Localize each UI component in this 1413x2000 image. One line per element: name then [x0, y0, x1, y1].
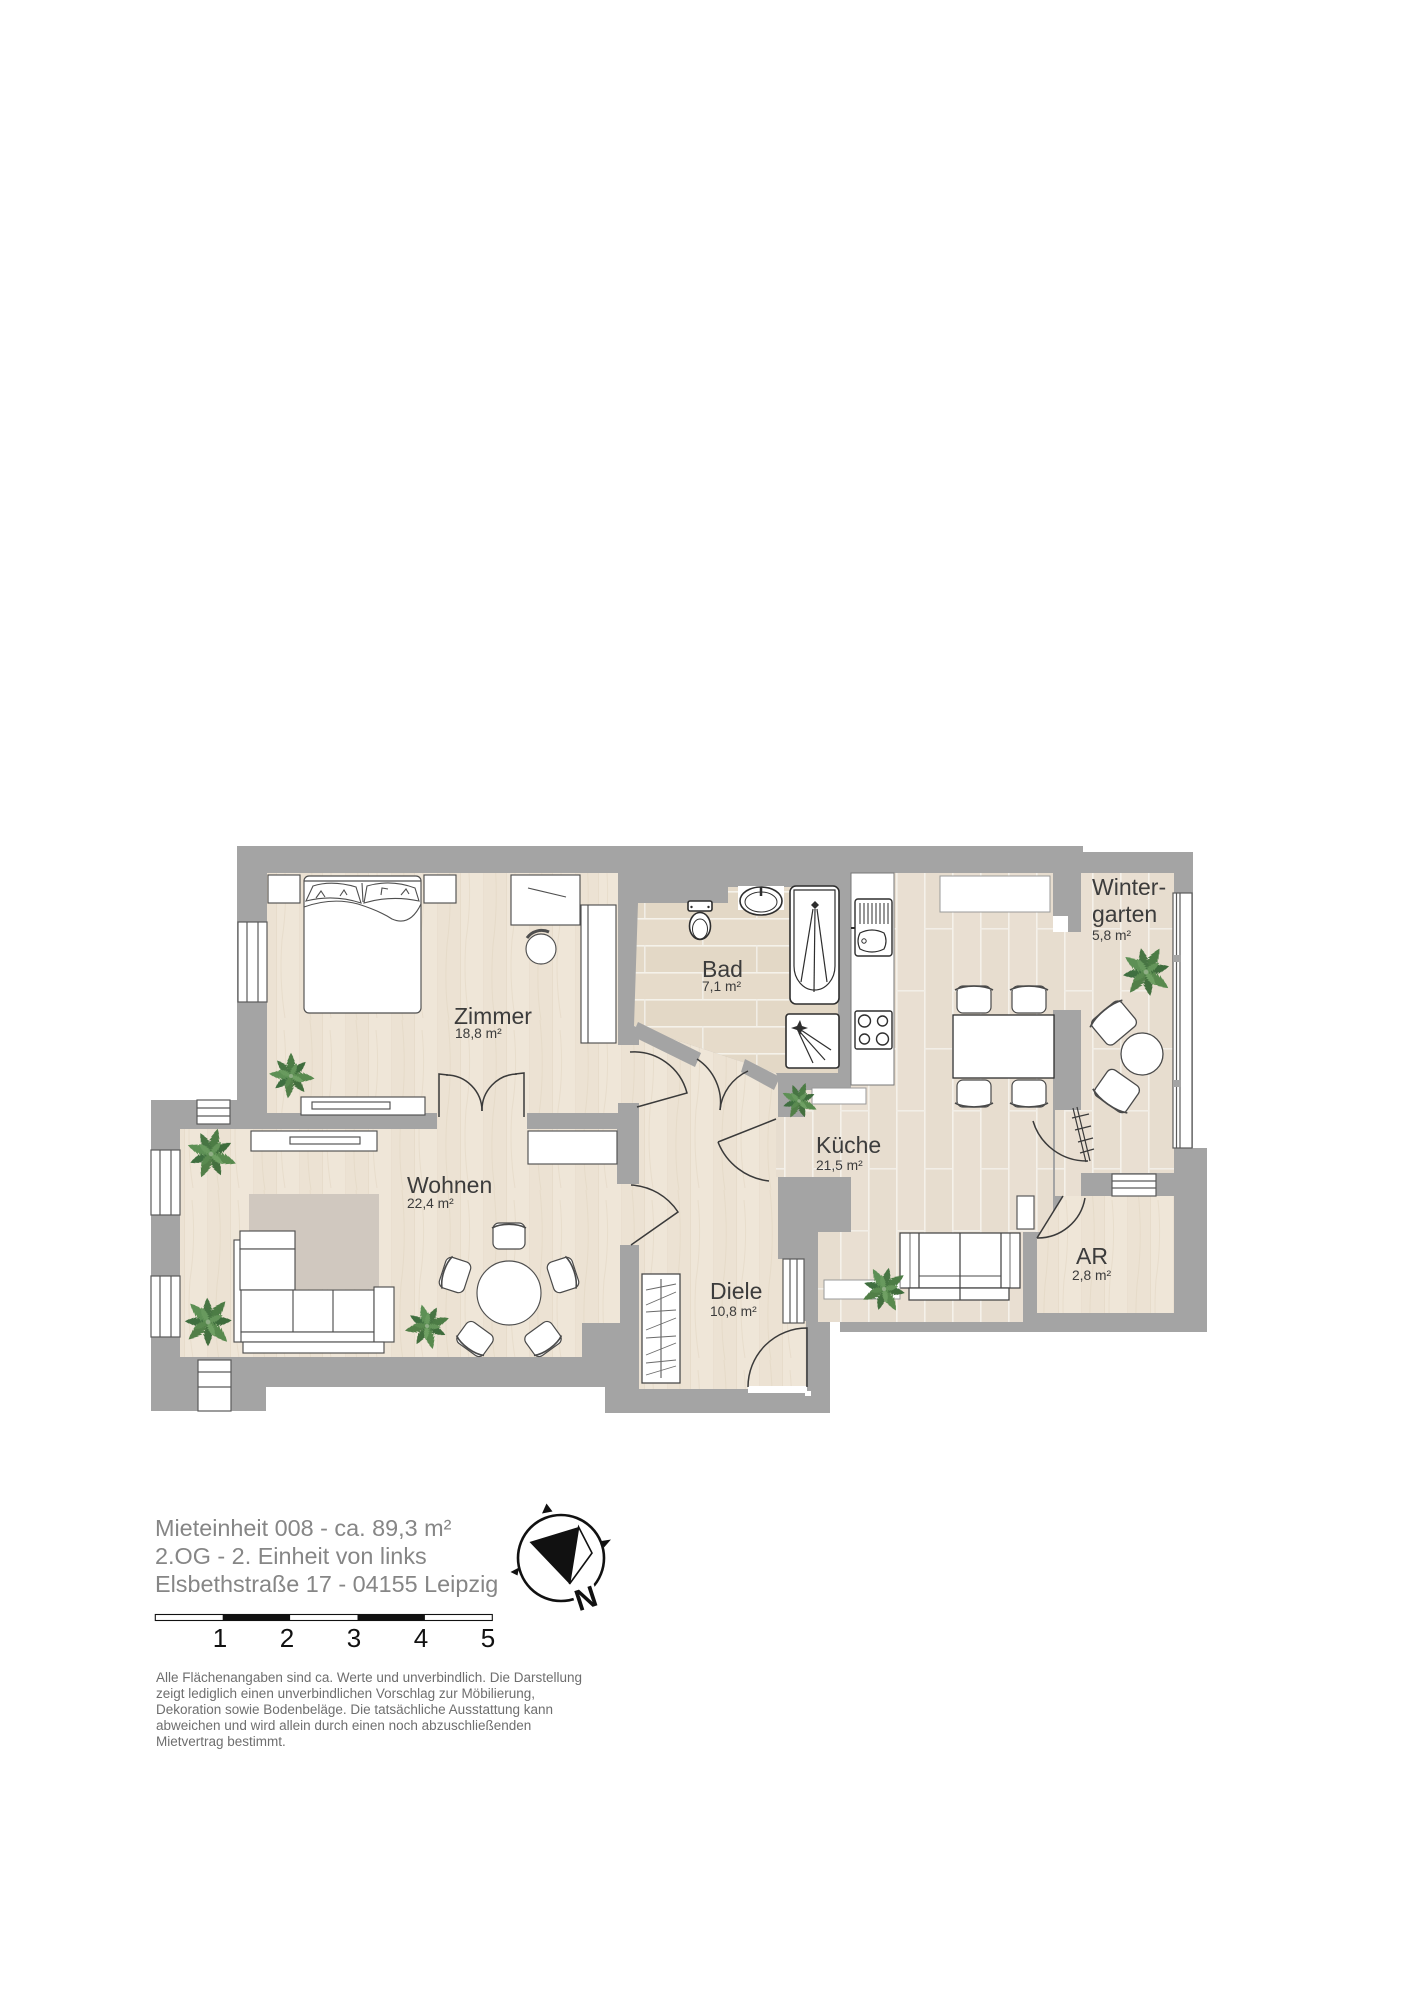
- svg-text:21,5 m²: 21,5 m²: [816, 1158, 863, 1173]
- svg-text:Winter-: Winter-: [1092, 874, 1166, 900]
- svg-text:5,8 m²: 5,8 m²: [1092, 928, 1132, 943]
- svg-text:2.OG - 2. Einheit von links: 2.OG - 2. Einheit von links: [155, 1543, 427, 1569]
- svg-text:2,8 m²: 2,8 m²: [1072, 1268, 1112, 1283]
- svg-text:3: 3: [347, 1623, 361, 1653]
- svg-text:AR: AR: [1076, 1243, 1108, 1269]
- svg-text:2: 2: [280, 1623, 294, 1653]
- svg-text:1: 1: [213, 1623, 227, 1653]
- svg-text:Wohnen: Wohnen: [407, 1172, 492, 1198]
- svg-text:5: 5: [481, 1623, 495, 1653]
- svg-text:zeigt lediglich einen unverbin: zeigt lediglich einen unverbindlichen Vo…: [156, 1686, 535, 1701]
- svg-text:Mieteinheit 008 - ca. 89,3 m²: Mieteinheit 008 - ca. 89,3 m²: [155, 1515, 452, 1541]
- svg-text:Diele: Diele: [710, 1278, 762, 1304]
- svg-text:18,8 m²: 18,8 m²: [455, 1026, 502, 1041]
- svg-text:10,8 m²: 10,8 m²: [710, 1304, 757, 1319]
- svg-text:abweichen und wird allein durc: abweichen und wird allein durch einen no…: [156, 1718, 531, 1733]
- svg-text:Mietvertrag bestimmt.: Mietvertrag bestimmt.: [156, 1734, 286, 1749]
- svg-text:Dekoration sowie Bodenbeläge.: Dekoration sowie Bodenbeläge. Die tatsäc…: [156, 1702, 553, 1717]
- svg-text:Alle Flächenangaben sind ca. W: Alle Flächenangaben sind ca. Werte und u…: [156, 1670, 582, 1685]
- svg-text:Elsbethstraße 17 - 04155 Leipz: Elsbethstraße 17 - 04155 Leipzig: [155, 1571, 498, 1597]
- svg-text:garten: garten: [1092, 901, 1157, 927]
- svg-text:7,1 m²: 7,1 m²: [702, 979, 742, 994]
- svg-text:22,4 m²: 22,4 m²: [407, 1196, 454, 1211]
- svg-text:4: 4: [414, 1623, 428, 1653]
- svg-text:Küche: Küche: [816, 1132, 881, 1158]
